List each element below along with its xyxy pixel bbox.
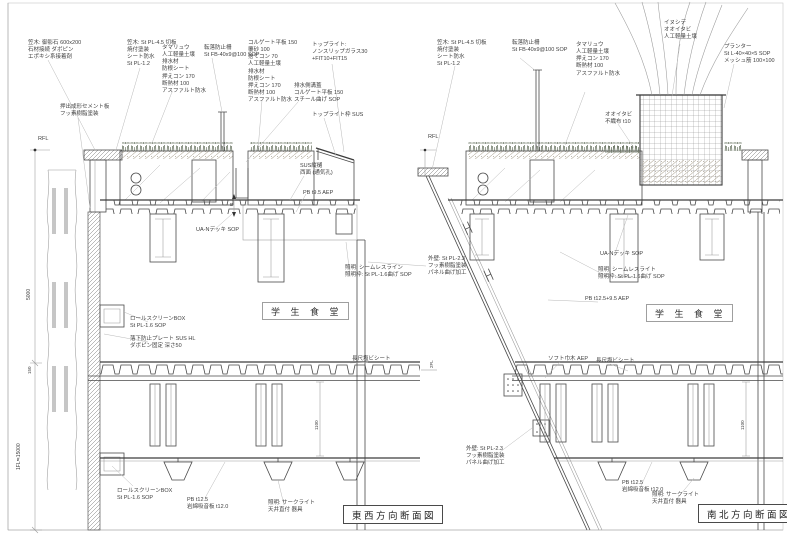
- ceiling-lights-left: [164, 458, 364, 480]
- ceiling-1f-right: [554, 458, 783, 461]
- note-vine: オオイタビ 不織布 t10: [605, 112, 632, 126]
- note-ext-wall-l: 外壁: St PL-2.3 フッ素樹脂塗装 パネル曲げ加工: [428, 256, 467, 277]
- dimension-line-left: [30, 149, 50, 533]
- ceiling-1f-left: [100, 458, 420, 461]
- ceiling-lights-right: [598, 458, 708, 480]
- exterior-wall-left-section: [357, 240, 365, 530]
- dim-1100-left-text: 1100: [314, 420, 319, 430]
- roof-deck-right: [448, 200, 783, 214]
- note-seamless-light-r: 照明: シームレスライト 照明枠: St PL-1.6曲げ SOP: [598, 267, 665, 281]
- note-vinyl-sheet-l: 長尺塩ビシート: [352, 356, 391, 363]
- drain-pipe-icon: [478, 173, 488, 183]
- roll-screen-box-upper: [100, 305, 124, 327]
- note-roll-screen-low: ロールスクリーンBOX St PL-1.6 SOP: [117, 488, 172, 502]
- level-1fl: 1FL≒15000: [16, 443, 22, 470]
- drain-pipe-icon: [131, 173, 141, 183]
- note-roll-screen-up: ロールスクリーンBOX St PL-1.6 SOP: [130, 316, 185, 330]
- roof-beams-left: [150, 214, 352, 282]
- note-planter: プランター St L-40×40×5 SOP メッシュ筋 100×100: [724, 44, 775, 65]
- roof-beams-right: [470, 214, 724, 282]
- existing-wall-left: [47, 170, 77, 490]
- floor-deck-2f-left: [88, 362, 420, 381]
- drawing-sheet: 笠木: 御影石 600x200 石材接続 ダボピン エポキシ系接着剤 押出成形セ…: [0, 0, 787, 541]
- drain-pipe-icon: [131, 185, 141, 195]
- note-deck-r: UA-Nデッキ SOP: [600, 251, 643, 258]
- note-drain-cover: 排水側溝蓋 コルゲート平板 150 スチール曲げ SOP: [294, 83, 343, 104]
- note-pb125-95: PB t12.5+9.5 AEP: [585, 296, 629, 303]
- note-toplight-frame: トップライト枠 SUS: [312, 112, 363, 119]
- floor-deck-2f-right: [512, 362, 783, 381]
- dim-height-left: 5000: [26, 289, 32, 300]
- note-soft-base: ソフト巾木 AEP: [548, 356, 588, 363]
- level-rfl-left: RFL: [38, 136, 48, 143]
- note-sus-pipe: SUS縦樋 西面 (通気孔): [300, 163, 333, 177]
- note-coping-stone: 笠木: 御影石 600x200 石材接続 ダボピン エポキシ系接着剤: [28, 40, 81, 61]
- note-roof-buildup-r: タマリュウ 人工軽量土壌 押えコン 170 断熱材 100 アスファルト防水: [576, 42, 620, 78]
- note-pb95: PB t9.5 AEP: [303, 190, 333, 197]
- splice-plate-a: [504, 374, 522, 396]
- note-corrugate-buildup: コルゲート平板 150 覆砂 100 捨てコン 70 人工軽量土壌 排水材 防根…: [248, 40, 297, 104]
- note-ext-wall-r: 外壁: St PL-2.3 フッ素樹脂塗装 パネル曲げ加工: [466, 446, 505, 467]
- note-toplight-glass: トップライト: ノンスリップガラス30 +FIT10+FIT15: [312, 42, 367, 63]
- note-seamless-light-l: 照明: シームレスライン 照明枠: St PL-1.6曲げ SOP: [345, 265, 412, 279]
- note-pb125-l: PB t12.5 岩綿吸音板 t12.0: [187, 497, 228, 511]
- dim-1100-right-text: 1100: [740, 420, 745, 430]
- detail-marker-b-text: B: [230, 202, 233, 208]
- title-east-west: 東西方向断面図: [343, 505, 443, 524]
- room-label-right: 学 生 食 堂: [646, 304, 733, 322]
- note-steel-coping-r: 笠木: St PL-4.5 切板 焼付塗装 シート防水 St PL-1.2: [437, 40, 487, 69]
- drain-gutter: [236, 168, 248, 198]
- level-2fl: 2FL: [429, 360, 434, 368]
- green-roof-left-a: [120, 142, 233, 205]
- note-tree: イヌシデ オオイタビ 人工軽量土壌: [664, 20, 697, 41]
- sloped-exterior-wall: [418, 168, 602, 530]
- note-deck-l: UA-Nデッキ SOP: [196, 227, 239, 234]
- room-label-left: 学 生 食 堂: [262, 302, 349, 320]
- note-roof-buildup-l: タマリュウ 人工軽量土壌 排水材 防根シート 押えコン 170 断熱材 100 …: [162, 45, 206, 95]
- note-fence-r: 転落防止柵 St FB-40x9@100 SOP: [512, 40, 567, 54]
- window-mullions-left: [150, 384, 282, 446]
- dim-150: 150: [27, 366, 32, 374]
- fall-prevention-fence-right: [533, 70, 542, 151]
- dim-1100-left: [316, 382, 324, 456]
- level-rfl-right: RFL: [428, 134, 438, 141]
- note-cement-board: 押出成形セメント板 フッ素樹脂塗装: [60, 104, 109, 118]
- note-vinyl-sheet-r: 長尺塩ビシート: [596, 358, 635, 365]
- roll-screen-box-lower: [100, 453, 124, 475]
- dim-1100-right: [742, 382, 750, 456]
- title-north-south: 南北方向断面図: [698, 504, 787, 523]
- planter: [605, 95, 726, 185]
- note-circline-r: 照明: サークライト 天井直付 器具: [652, 492, 699, 506]
- steel-beam-glyph: [463, 222, 472, 235]
- wall-texture-bars: [52, 188, 68, 412]
- window-mullions-right: [540, 384, 714, 446]
- note-fall-plate: 落下防止プレート SUS HL ダボピン固定 深さ50: [130, 336, 195, 350]
- note-circline-l: 照明: サークライト 天井直付 器具: [268, 500, 315, 514]
- drain-pipe-icon: [478, 185, 488, 195]
